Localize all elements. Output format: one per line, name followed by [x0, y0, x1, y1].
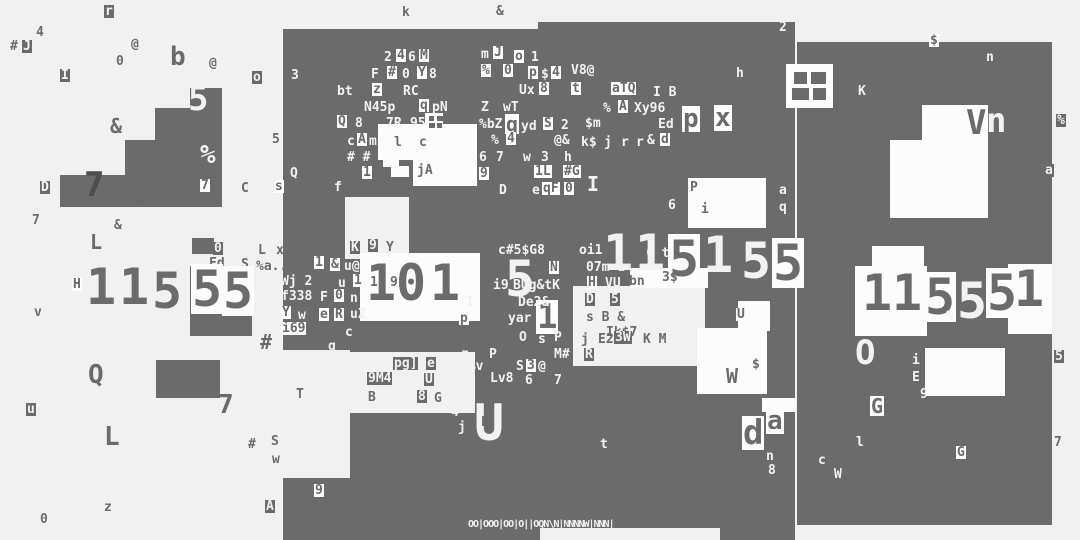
glyph: 1 — [366, 258, 396, 308]
glyph: x — [714, 105, 732, 131]
glyph: 6 — [479, 151, 487, 164]
glyph: T — [296, 388, 304, 401]
glyph: F — [371, 68, 379, 81]
glyph: 5 — [188, 82, 208, 116]
glyph: 7 — [496, 151, 504, 164]
glyph: z — [372, 83, 382, 96]
glyph: p — [459, 312, 469, 325]
glyph: a — [1044, 164, 1054, 177]
glyph: s — [274, 180, 284, 193]
glyph: 8 — [429, 68, 437, 81]
glyph: u — [26, 403, 36, 416]
glyph: qF — [542, 182, 560, 195]
blob-rect — [813, 88, 826, 100]
glyph: 8 — [417, 390, 427, 403]
blob-rect — [792, 88, 809, 100]
glyph: 4 — [451, 406, 459, 419]
glyph: % — [1056, 114, 1066, 127]
glyph: Q — [290, 167, 298, 180]
glyph: @ — [209, 57, 217, 70]
glyph: bt — [337, 85, 353, 98]
glyph: f338 — [281, 290, 312, 303]
glyph: V8@ — [571, 64, 594, 77]
glyph: k$ — [581, 136, 597, 149]
glyph: Y — [386, 241, 394, 254]
glyph: & — [496, 5, 504, 18]
glyph-string: BUg&tK — [513, 279, 560, 292]
glyph: J — [493, 46, 503, 59]
blob-rect — [538, 22, 795, 30]
glyph: 9 — [314, 484, 324, 497]
glyph: Y — [281, 306, 291, 319]
blob-rect — [156, 360, 220, 398]
glyph: c — [347, 135, 355, 148]
glyph: C — [241, 182, 249, 195]
glyph: % — [603, 102, 611, 115]
glyph: P — [489, 348, 497, 361]
glyph: 4 — [332, 242, 340, 255]
glyph: n — [986, 104, 1006, 138]
glyph: oi1 — [579, 244, 602, 257]
glyph: RC — [403, 85, 419, 98]
glyph: f — [334, 181, 342, 194]
glyph: S — [271, 435, 279, 448]
glyph: 7 — [200, 179, 210, 192]
glyph: e — [532, 184, 540, 197]
glyph: B — [368, 391, 376, 404]
glyph: 6 — [525, 374, 533, 387]
glyph: M# — [554, 348, 570, 361]
glyph: yd — [521, 120, 537, 133]
glyph: j — [581, 333, 589, 346]
glyph: Ux — [519, 84, 535, 97]
blob-rect — [429, 116, 434, 121]
glyph: c — [345, 326, 353, 339]
glyph-string: 07m a — [586, 261, 625, 274]
blob-rect — [192, 238, 214, 254]
glyph: 0 — [213, 242, 223, 255]
glyph: o — [252, 71, 262, 84]
glyph: 95 — [410, 117, 426, 130]
glyph: H — [587, 276, 597, 289]
glyph: Ed — [658, 118, 674, 131]
glyph: d — [660, 133, 670, 146]
glyph: w — [523, 151, 531, 164]
glyph: j — [458, 421, 466, 434]
glyph: # — [387, 66, 397, 79]
glyph: 1 — [314, 256, 324, 269]
glyph: 1 — [703, 230, 733, 280]
glyph: # — [260, 332, 272, 352]
glyph: Lv8 — [490, 372, 513, 385]
glyph: $m — [585, 117, 601, 130]
glyph: M — [419, 49, 429, 62]
glyph: i9 — [493, 279, 509, 292]
glyph: Q — [88, 362, 104, 388]
glyph: bn — [629, 275, 645, 288]
glyph: 5 — [191, 264, 223, 314]
glyph: 7 — [218, 392, 234, 418]
glyph: Y — [417, 66, 427, 79]
glyph: 1 — [353, 274, 363, 287]
glyph: k — [481, 416, 489, 429]
glyph: A — [618, 100, 628, 113]
white-patch — [786, 64, 833, 108]
glyph: & — [330, 258, 340, 271]
glyph: U — [736, 308, 746, 321]
blob-rect — [437, 116, 443, 121]
glyph: D — [499, 184, 507, 197]
glyph: #G — [563, 165, 581, 178]
glyph: 9 — [368, 239, 378, 252]
glyph: 0 — [334, 289, 344, 302]
glyph: 0 — [396, 258, 426, 308]
glyph: 7 — [554, 374, 562, 387]
glyph: 1 — [862, 268, 892, 318]
glyph: a — [766, 408, 784, 434]
glyph: Z — [481, 101, 489, 114]
glyph: R — [334, 308, 344, 321]
glyph: 1 — [430, 258, 460, 308]
glyph: K — [858, 85, 866, 98]
glyph: 8 — [539, 82, 549, 95]
glyph: 4 — [506, 132, 516, 145]
white-patch — [391, 166, 409, 177]
white-patch — [890, 140, 988, 218]
glyph: 7 — [32, 214, 40, 227]
glyph: 5 — [956, 276, 988, 326]
glyph: U — [424, 373, 434, 386]
glyph-string: OO|OOO|OO|O||OQN\N|NNNNW|NNN| — [468, 520, 614, 530]
glyph: L — [258, 244, 266, 257]
glyph: U — [474, 398, 504, 448]
glyph: i — [912, 354, 920, 367]
glyph: z — [104, 501, 112, 514]
glyph: 5 — [272, 133, 280, 146]
glyph: 3 — [291, 69, 299, 82]
light-patch — [283, 350, 350, 478]
glyph: 5 — [222, 266, 254, 316]
glyph: J — [22, 40, 32, 53]
glyph: C t — [646, 247, 669, 260]
glyph: 7R — [386, 117, 402, 130]
glyph: 8 — [355, 117, 363, 130]
glyph: k — [263, 277, 271, 290]
glyph: Xy96 — [634, 102, 665, 115]
glyph: u@ — [344, 260, 360, 273]
glyph: k — [402, 6, 410, 19]
glyph: %bZ — [479, 118, 502, 131]
glyph: m — [369, 135, 377, 148]
glyph: q — [353, 356, 361, 369]
glyph: 5 — [772, 238, 804, 288]
white-patch — [688, 178, 766, 228]
glyph: t — [600, 438, 608, 451]
glyph: & — [646, 134, 656, 147]
glyph: 5 — [740, 236, 772, 286]
glyph: 0 — [40, 513, 48, 526]
glyph: 3 — [541, 151, 549, 164]
glyph: 3$ — [662, 271, 678, 284]
glyph: G — [434, 392, 442, 405]
glyph: 1 — [531, 51, 539, 64]
glyph: 0 — [402, 68, 410, 81]
glyph: O — [519, 331, 527, 344]
glyph: z — [135, 197, 143, 210]
glyph: r — [636, 136, 644, 149]
glyph: g%v — [460, 360, 483, 373]
glyph: E — [912, 371, 920, 384]
glyph: n — [766, 450, 774, 463]
glyph: I B — [653, 86, 676, 99]
glyph: 0 — [503, 64, 513, 77]
glyph: # # — [347, 151, 370, 164]
glyph: i — [701, 203, 709, 216]
glyph: e — [426, 357, 436, 370]
glyph: 1 — [362, 166, 372, 179]
glyph: A — [265, 500, 275, 513]
glyph: gW — [338, 374, 354, 387]
glyph: aTQ — [611, 82, 636, 95]
glyph: h — [564, 151, 572, 164]
glyph: H — [72, 278, 82, 291]
glyph: j — [604, 136, 612, 149]
glyph: h — [736, 67, 744, 80]
glyph: w — [272, 453, 280, 466]
glyph: n — [986, 51, 994, 64]
glyph: n — [350, 292, 358, 305]
glyph: F — [320, 291, 328, 304]
glyph: l — [856, 436, 864, 449]
glyph: c — [265, 306, 273, 319]
blob-rect — [811, 72, 826, 84]
glyph: @ — [131, 38, 139, 51]
glyph: g — [328, 340, 336, 353]
glyph: 0 — [564, 182, 574, 195]
glyph: P — [690, 181, 698, 194]
glyph: O — [855, 336, 875, 370]
glyph: 2 — [779, 21, 787, 34]
glyph: pg] — [393, 357, 418, 370]
glyph: uZ — [350, 308, 366, 321]
glyph: 1 — [86, 262, 116, 312]
glyph: X456 — [289, 242, 320, 255]
glyph: p — [528, 66, 538, 79]
glyph: K M — [643, 333, 666, 346]
glyph: G — [870, 396, 884, 416]
glyph: jA — [417, 164, 433, 177]
glyph: 6 — [1040, 229, 1048, 242]
glyph: r — [104, 5, 114, 18]
glyph: 9 — [479, 167, 489, 180]
glyph: I — [466, 296, 474, 309]
glyph: l — [394, 136, 402, 149]
glyph: De2& — [518, 296, 549, 309]
glyph: A — [357, 133, 367, 146]
glyph: R — [584, 348, 594, 361]
glyph: VU — [605, 277, 621, 290]
glyph: i69 — [281, 322, 306, 335]
glyph-string: c#5$G8 — [498, 244, 545, 257]
glyph: # — [248, 438, 256, 451]
glyph: 6 — [668, 199, 676, 212]
glyph: x — [276, 244, 284, 257]
glyph: W — [834, 468, 842, 481]
glyph: m — [481, 48, 489, 61]
glyph: %a.. — [256, 260, 287, 273]
glyph: 9 — [920, 388, 928, 401]
glyph: D — [585, 293, 595, 306]
glyph: 2 — [561, 119, 569, 132]
glyph: 1 — [892, 268, 922, 318]
glyph: % — [481, 64, 491, 77]
glyph: r — [621, 136, 629, 149]
glyph: 4 — [396, 49, 406, 62]
glyph: c — [419, 136, 427, 149]
glyph: $ — [929, 34, 939, 47]
glyph: @& — [554, 134, 570, 147]
glyph: 1 — [1014, 264, 1044, 314]
glyph: Wj 2 — [281, 275, 312, 288]
glyph: 3W — [614, 331, 632, 344]
glyph: I — [587, 174, 599, 194]
glyph: 8 — [768, 464, 776, 477]
glyph: & — [110, 116, 122, 136]
glyph: $ — [752, 358, 760, 371]
glyph: S — [516, 360, 524, 373]
blob-rect — [437, 123, 442, 128]
glyph: pN — [432, 101, 448, 114]
glyph: 4 — [551, 66, 561, 79]
glyph: D — [40, 181, 50, 194]
ascii-art-canvas: r4#J@0b@Io3k&2hK$n%Vna6&5%7D7zC5Qs7&Lf24… — [0, 0, 1080, 540]
glyph: c — [818, 454, 826, 467]
glyph: & — [114, 219, 122, 232]
glyph: yar — [508, 312, 531, 325]
glyph: 2 — [384, 51, 392, 64]
glyph: Q — [337, 115, 347, 128]
glyph: q — [419, 99, 429, 112]
glyph: t — [571, 82, 581, 95]
glyph: b — [170, 44, 186, 70]
glyph: L — [104, 424, 120, 450]
glyph: $ — [541, 68, 549, 81]
glyph: P — [554, 331, 562, 344]
glyph: e — [319, 308, 329, 321]
glyph: 1L — [534, 165, 552, 178]
glyph: % — [946, 310, 954, 323]
glyph: % — [491, 134, 499, 147]
glyph: @ — [538, 360, 546, 373]
glyph: s — [538, 333, 546, 346]
glyph: v — [34, 306, 42, 319]
glyph-string: s B & — [586, 311, 625, 324]
glyph: V — [966, 106, 986, 140]
glyph: 7 — [84, 168, 104, 202]
blob-rect — [794, 72, 807, 84]
glyph: d — [742, 416, 764, 450]
glyph: 5 — [152, 266, 182, 316]
glyph: q — [779, 201, 787, 214]
glyph: N45p — [364, 101, 395, 114]
glyph: K — [350, 241, 360, 254]
glyph: a — [779, 184, 787, 197]
glyph: 0 — [116, 55, 124, 68]
glyph: L — [90, 232, 102, 252]
white-patch — [925, 348, 1005, 396]
glyph: 9M4 — [367, 372, 392, 385]
glyph: o — [514, 50, 524, 63]
glyph: 5 — [1054, 350, 1064, 363]
glyph: 5 — [610, 293, 620, 306]
glyph: E2 — [598, 333, 614, 346]
glyph: 3 — [526, 359, 536, 372]
glyph: S — [543, 117, 553, 130]
glyph: 1 — [119, 262, 149, 312]
glyph: G — [956, 446, 966, 459]
glyph: 6 — [408, 51, 416, 64]
glyph: p — [682, 106, 700, 132]
blob-rect — [429, 123, 435, 128]
glyph: N — [549, 261, 559, 274]
glyph: % — [200, 142, 216, 168]
glyph: # — [10, 40, 18, 53]
glyph: I — [60, 69, 70, 82]
glyph: 7 — [1054, 436, 1062, 449]
glyph: 4 — [36, 26, 44, 39]
glyph: W — [726, 366, 738, 386]
